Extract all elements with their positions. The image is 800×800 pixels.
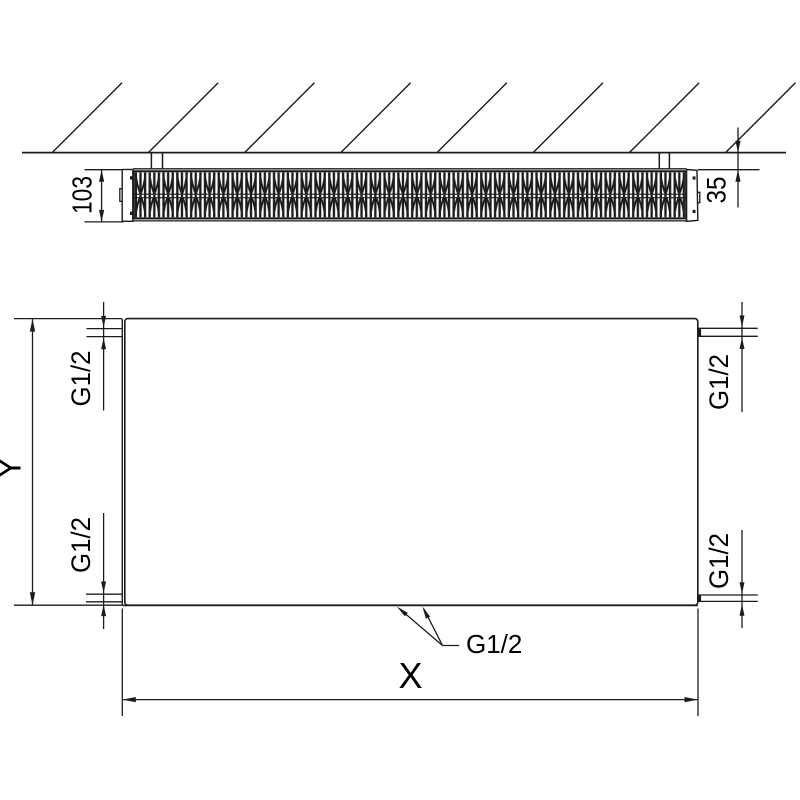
svg-text:G1/2: G1/2 <box>466 629 522 659</box>
svg-text:G1/2: G1/2 <box>704 533 734 589</box>
svg-text:Y: Y <box>0 457 28 479</box>
svg-text:G1/2: G1/2 <box>66 351 96 407</box>
svg-text:X: X <box>398 655 422 696</box>
svg-text:35: 35 <box>702 177 732 204</box>
svg-text:G1/2: G1/2 <box>704 354 734 410</box>
svg-text:103: 103 <box>66 176 97 214</box>
svg-text:G1/2: G1/2 <box>66 517 96 573</box>
